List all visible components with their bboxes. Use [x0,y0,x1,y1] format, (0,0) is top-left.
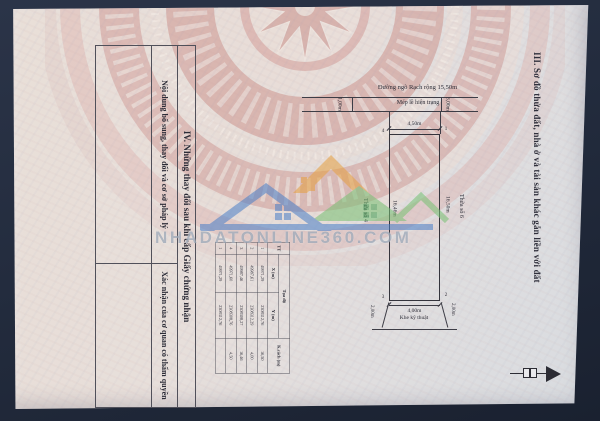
coord-cell-y: 2308308,27 [236,292,246,338]
plot-rectangle [389,134,440,301]
coord-cell-k: 4,50 [226,338,236,373]
offset-tick-right [441,98,442,111]
corner-2: 2 [442,293,450,299]
section4-col1-empty-cell [96,46,151,263]
coord-table-row: 249987,612308312,294,00 [247,242,257,373]
coord-cell-x: 49971,29 [257,254,267,292]
coord-cell-tt: 4 [226,242,236,254]
section4-col-content: Nội dung bổ sung, thay đổi và cơ sở pháp… [96,46,177,263]
coord-table-row: 349987,462308308,2716,46 [236,242,246,373]
coordinate-table: TT Tọa độ K.cách (m) X (m) Y (m) 149971,… [215,242,290,373]
coord-cell-x: 49971,60 [226,254,236,292]
coord-cell-y: 2308308,76 [226,292,236,338]
technical-gap-label: Khe kỹ thuật [384,315,444,321]
section4-col2-empty-cell [96,264,151,407]
coord-cell-y: 2308312,76 [257,292,267,338]
coord-table-row: 149971,292308312,7616,50 [257,242,267,373]
coord-cell-x: 49971,29 [215,254,226,292]
section4-heading: IV. Những thay đổi sau khi cấp Giấy chứn… [177,46,195,407]
edge-line [302,111,478,112]
coord-header-y: Y (m) [268,292,279,338]
coord-cell-tt: 1 [257,242,267,254]
corner-4: 4 [379,129,387,135]
right-neighbor-plot: Thửa số 6 [458,194,464,218]
gap-bottom-line [372,329,457,330]
coord-header-kcach: K.cách (m) [268,338,290,373]
section4-col2-header: Xác nhận của cơ quan có thẩm quyền [151,264,177,407]
coord-table-row: 149971,292308312,76 [215,242,226,373]
section4-col-confirm: Xác nhận của cơ quan có thẩm quyền [96,263,177,407]
coord-cell-y: 2308312,76 [215,292,226,338]
right-side-dimension: 16,50m [444,196,450,213]
coord-header-x: X (m) [268,254,279,292]
offset-right-label: 3,00m [444,97,450,111]
coord-cell-tt: 3 [236,242,246,254]
bottom-dimension-label: 4,00m [389,308,440,314]
coord-cell-tt: 1 [215,242,226,254]
coord-cell-k: 16,50 [257,338,267,373]
section4-table: IV. Những thay đổi sau khi cấp Giấy chứn… [95,45,196,408]
north-arrow-square [523,368,530,378]
section4-col1-header: Nội dung bổ sung, thay đổi và cơ sở pháp… [151,46,177,263]
coord-table-body: 149971,292308312,7616,50249987,612308312… [215,242,267,373]
coord-header-tt: TT [268,242,290,254]
north-arrow-icon [510,366,566,382]
gap-left-label: 2,00m [369,305,374,318]
coord-cell-k: 4,00 [247,338,257,373]
left-side-dimension: 16,46m [391,200,397,217]
coord-cell-x: 49987,46 [236,254,246,292]
left-neighbor-plot: Thửa số 4 [362,198,368,222]
offset-left-label: 1,00m [336,97,342,111]
coord-table-row: 449971,602308308,764,50 [226,242,236,373]
dimension-line-top [389,129,440,130]
road-line [302,97,478,98]
north-arrow-square [530,368,537,378]
top-dimension-label: 4,50m [389,121,440,127]
north-arrowhead [546,366,561,382]
offset-tick-left [352,98,353,111]
section3-title: III. Sơ đồ thửa đất, nhà ở và tài sản kh… [528,52,546,308]
coord-cell-x: 49987,61 [247,254,257,292]
coord-cell-tt: 2 [247,242,257,254]
coord-cell-k [215,338,226,373]
corner-1: 1 [442,127,450,133]
connector-right [440,111,441,134]
coord-cell-k: 16,46 [236,338,246,373]
gap-right-label: 2,00m [450,303,455,316]
photo-canvas: III. Sơ đồ thửa đất, nhà ở và tài sản kh… [0,0,600,421]
coord-header-toado: Tọa độ [279,254,290,338]
corner-3: 3 [379,295,387,301]
coord-cell-y: 2308312,29 [247,292,257,338]
road-label: Đường ngõ Rạch rộng 15,50m [370,84,465,91]
dimension-line-bottom [389,305,440,306]
